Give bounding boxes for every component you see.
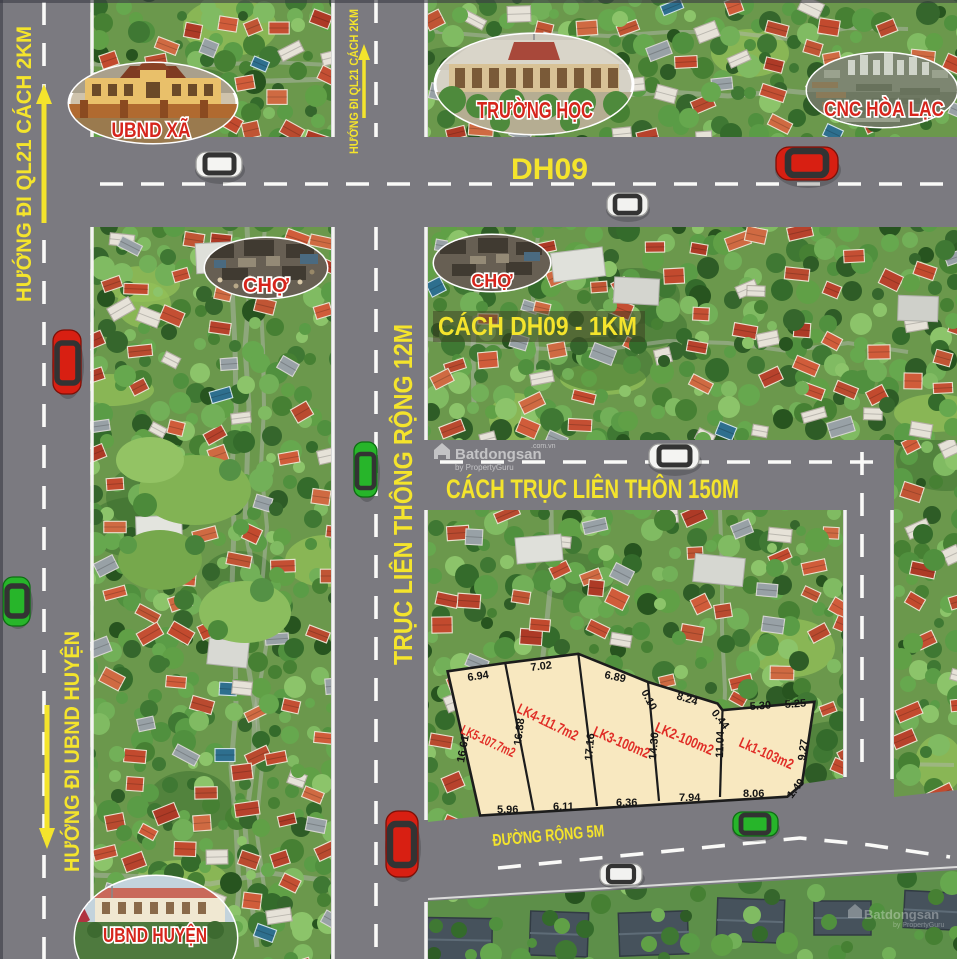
svg-text:HƯỚNG ĐI QL21 CÁCH 2KM: HƯỚNG ĐI QL21 CÁCH 2KM <box>11 26 36 302</box>
svg-text:CNC HÒA LẠC: CNC HÒA LẠC <box>824 97 944 121</box>
svg-text:CÁCH DH09 - 1KM: CÁCH DH09 - 1KM <box>438 311 637 341</box>
svg-text:6.36: 6.36 <box>616 797 637 809</box>
svg-text:Batdongsan: Batdongsan <box>455 446 542 463</box>
svg-text:5.30: 5.30 <box>749 700 771 713</box>
svg-text:TRƯỜNG HỌC: TRƯỜNG HỌC <box>477 96 593 123</box>
svg-text:8.06: 8.06 <box>743 788 764 800</box>
svg-text:by PropertyGuru: by PropertyGuru <box>455 463 514 472</box>
svg-text:5.25: 5.25 <box>784 698 806 711</box>
svg-text:UBND HUYỆN: UBND HUYỆN <box>103 923 207 947</box>
svg-text:17.16: 17.16 <box>583 733 597 761</box>
svg-text:CHỢ: CHỢ <box>243 275 290 297</box>
svg-text:11.04: 11.04 <box>714 730 727 758</box>
svg-text:HƯỚNG ĐI QL21 CÁCH 2KM: HƯỚNG ĐI QL21 CÁCH 2KM <box>346 9 361 154</box>
svg-text:7.94: 7.94 <box>679 792 701 804</box>
svg-text:by PropertyGuru: by PropertyGuru <box>893 922 944 929</box>
svg-text:DH09: DH09 <box>511 153 588 186</box>
svg-text:.com.vn: .com.vn <box>531 443 556 450</box>
svg-text:TRỤC LIÊN THÔNG RỘNG 12M: TRỤC LIÊN THÔNG RỘNG 12M <box>388 324 418 665</box>
svg-text:UBND XÃ: UBND XÃ <box>112 119 191 142</box>
svg-text:5.96: 5.96 <box>497 804 518 816</box>
svg-text:Batdongsan: Batdongsan <box>864 907 939 922</box>
svg-text:CÁCH TRỤC LIÊN THÔN 150M: CÁCH TRỤC LIÊN THÔN 150M <box>446 473 739 504</box>
svg-text:14.30: 14.30 <box>647 732 661 760</box>
svg-text:HƯỚNG ĐI UBND HUYỆN: HƯỚNG ĐI UBND HUYỆN <box>59 631 84 872</box>
svg-text:6.11: 6.11 <box>553 801 574 813</box>
svg-text:CHỢ: CHỢ <box>471 271 513 291</box>
